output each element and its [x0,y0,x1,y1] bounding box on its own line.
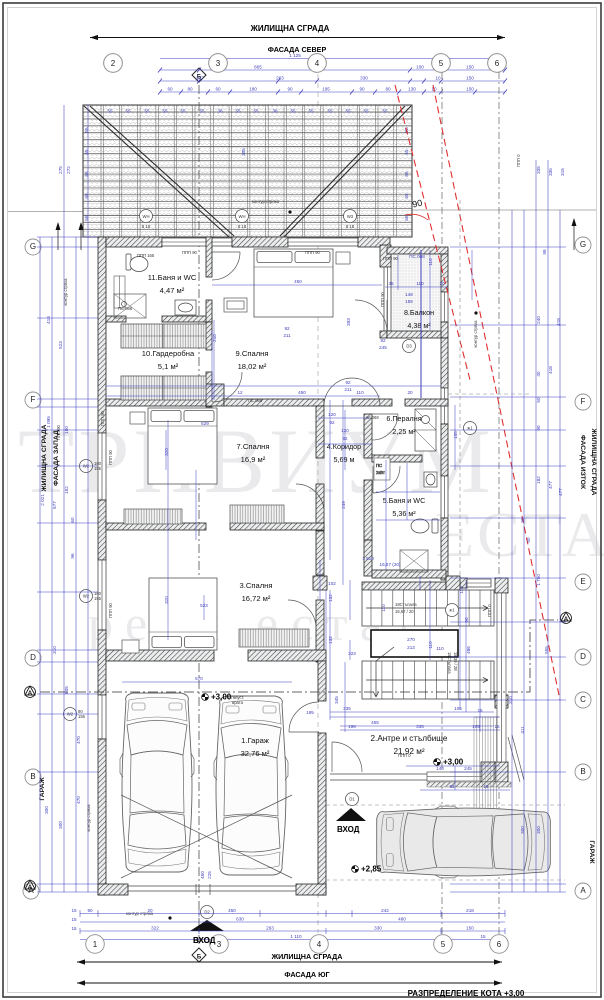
svg-text:529: 529 [201,421,209,426]
svg-text:ЖИЛИЩНА СГРАДА: ЖИЛИЩНА СГРАДА [41,424,48,492]
svg-text:105: 105 [454,706,462,711]
svg-text:контур стряха: контур стряха [473,320,478,348]
svg-text:150: 150 [466,926,474,931]
svg-text:D: D [580,652,586,661]
svg-text:80: 80 [385,87,391,92]
svg-text:1 095: 1 095 [46,416,51,428]
svg-text:132: 132 [328,594,333,602]
svg-text:335: 335 [416,724,424,729]
svg-text:5: 5 [441,940,446,949]
svg-text:15: 15 [71,908,77,913]
svg-text:ППП 0: ППП 0 [487,604,492,617]
svg-text:677: 677 [52,501,57,509]
svg-text:РАЗПРЕДЕЛЕНИЕ КОТА +3,00: РАЗПРЕДЕЛЕНИЕ КОТА +3,00 [408,989,525,998]
svg-text:55: 55 [404,149,409,155]
svg-text:180: 180 [249,87,257,92]
svg-text:92: 92 [284,326,290,331]
svg-text:8.Балкон: 8.Балкон [404,308,434,317]
svg-text:контур стряха: контур стряха [63,278,68,306]
svg-text:60: 60 [167,87,173,92]
svg-text:ж1: ж1 [449,608,455,613]
svg-text:90: 90 [536,425,541,431]
svg-text:ППП 0: ППП 0 [516,154,521,167]
svg-text:55: 55 [404,215,409,221]
svg-text:18Стъпала: 18Стъпала [447,652,452,674]
svg-text:+3,00: +3,00 [443,758,464,767]
svg-text:275: 275 [58,166,63,174]
svg-text:55: 55 [404,193,409,199]
svg-text:300: 300 [58,821,63,829]
svg-text:55: 55 [125,109,131,114]
svg-text:393: 393 [346,318,351,326]
svg-text:90: 90 [464,617,469,623]
svg-text:контур стряха: контур стряха [252,199,280,204]
svg-text:322: 322 [151,926,159,931]
svg-text:35: 35 [388,281,394,286]
svg-text:418: 418 [556,318,561,326]
svg-text:418: 418 [548,366,553,374]
svg-text:150: 150 [466,65,474,70]
svg-text:865: 865 [254,65,262,70]
svg-text:55: 55 [345,109,351,114]
svg-text:18Стъпала: 18Стъпала [395,602,417,607]
svg-text:55: 55 [144,109,150,114]
svg-text:211: 211 [283,333,291,338]
svg-text:5,69 м: 5,69 м [334,455,355,464]
svg-text:130: 130 [408,87,416,92]
svg-text:630: 630 [236,917,244,922]
svg-text:470: 470 [76,796,81,804]
svg-text:ППП 90: ППП 90 [108,449,113,465]
svg-text:523: 523 [58,341,63,349]
svg-text:300: 300 [44,806,49,814]
svg-text:249: 249 [341,501,346,509]
svg-text:150: 150 [466,76,474,81]
svg-text:20: 20 [439,281,445,286]
svg-text:врата: врата [232,700,244,705]
svg-text:335: 335 [343,706,351,711]
svg-text:418: 418 [46,316,51,324]
svg-text:455: 455 [371,720,379,725]
svg-text:345: 345 [334,696,339,704]
svg-text:контур стряха: контур стряха [86,804,91,832]
svg-text:1 750: 1 750 [536,574,541,586]
svg-text:330: 330 [374,926,382,931]
svg-text:605: 605 [64,686,69,694]
svg-text:110: 110 [428,641,433,649]
svg-text:55: 55 [107,109,113,114]
svg-text:ПС.068: ПС.068 [248,398,263,403]
svg-text:32,76 м²: 32,76 м² [241,749,270,758]
svg-text:60: 60 [215,87,221,92]
svg-text:55: 55 [308,109,314,114]
svg-text:ВХОД: ВХОД [337,825,360,834]
svg-text:20: 20 [147,908,153,913]
svg-text:263: 263 [276,76,284,81]
svg-text:477: 477 [548,481,553,489]
svg-text:95: 95 [520,517,525,523]
svg-text:ЖИЛИЩНА СГРАДА: ЖИЛИЩНА СГРАДА [590,428,597,496]
svg-text:4.Коридор: 4.Коридор [327,442,361,451]
svg-text:477: 477 [558,488,563,496]
svg-text:2: 2 [111,59,116,68]
svg-text:80: 80 [187,87,193,92]
svg-text:6.Пералня: 6.Пералня [386,414,421,423]
svg-text:7.Спалня: 7.Спалня [237,442,270,451]
svg-text:B: B [580,767,585,776]
svg-text:196: 196 [348,724,356,729]
svg-text:140: 140 [436,766,444,771]
svg-text:335: 335 [548,168,553,176]
svg-text:1.Гараж: 1.Гараж [241,736,270,745]
svg-text:155: 155 [94,596,102,601]
svg-text:110: 110 [459,586,464,594]
svg-text:211: 211 [344,387,352,392]
svg-text:105: 105 [472,724,480,729]
svg-text:ЕСТАТЕ: ЕСТАТЕ [435,499,604,570]
svg-text:+2,85: +2,85 [361,865,382,874]
svg-text:310: 310 [52,646,57,654]
svg-text:210: 210 [212,334,217,342]
svg-text:55: 55 [382,109,388,114]
svg-text:330: 330 [360,76,368,81]
svg-text:ППП 90: ППП 90 [380,291,385,307]
svg-text:9.Спалня: 9.Спалня [236,349,269,358]
svg-text:3.Спалня: 3.Спалня [240,581,273,590]
svg-text:A: A [28,884,33,891]
svg-text:4,38 м²: 4,38 м² [407,321,431,330]
svg-text:180: 180 [64,426,69,434]
svg-text:B: B [30,772,35,781]
svg-text:15: 15 [71,926,77,931]
svg-text:15: 15 [480,934,486,939]
svg-text:C: C [580,695,586,704]
svg-text:300: 300 [536,826,541,834]
svg-text:242: 242 [381,908,389,913]
svg-text:5,1 м²: 5,1 м² [158,362,179,371]
svg-text:110: 110 [356,390,364,395]
svg-text:105: 105 [453,431,458,439]
svg-text:320: 320 [164,596,169,604]
svg-text:6: 6 [497,940,502,949]
svg-text:555: 555 [544,646,549,654]
svg-text:310: 310 [508,696,513,704]
svg-text:152: 152 [64,486,69,494]
svg-text:ППП 90: ППП 90 [108,602,113,618]
svg-text:270: 270 [407,637,415,642]
svg-text:F: F [581,397,586,406]
svg-text:11.Баня и WC: 11.Баня и WC [148,273,197,282]
svg-text:D3: D3 [406,344,412,349]
svg-text:213: 213 [407,645,415,650]
svg-text:W2: W2 [83,594,90,599]
svg-text:450: 450 [298,390,306,395]
svg-text:55: 55 [327,109,333,114]
svg-text:ППП 90: ППП 90 [383,256,399,261]
svg-text:ППП 165: ППП 165 [137,253,155,258]
svg-text:55: 55 [363,109,369,114]
svg-text:90: 90 [359,87,365,92]
svg-text:ЖИЛИЩНА СГРАДА: ЖИЛИЩНА СГРАДА [250,24,330,33]
svg-text:пп.068: пп.068 [366,415,379,420]
svg-text:2,25 м²: 2,25 м² [392,427,416,436]
svg-text:5,36 м²: 5,36 м² [392,509,416,518]
svg-text:G: G [30,242,36,251]
svg-text:55: 55 [290,109,296,114]
svg-text:18,39 / 28: 18,39 / 28 [453,652,458,671]
svg-text:55: 55 [199,109,205,114]
svg-text:8 18: 8 18 [238,224,247,229]
svg-text:16,9 м²: 16,9 м² [241,455,266,464]
svg-text:38: 38 [217,109,223,114]
svg-text:8 18: 8 18 [142,224,151,229]
svg-text:WH: WH [143,214,150,219]
svg-text:96: 96 [70,553,75,559]
svg-text:120: 120 [328,412,336,417]
svg-text:16,67 / 20: 16,67 / 20 [395,609,414,614]
svg-text:2кВт: 2кВт [376,470,385,475]
svg-text:132: 132 [328,636,333,644]
svg-text:110: 110 [428,258,433,266]
svg-text:ГАРАЖ: ГАРАЖ [588,840,595,864]
svg-text:277: 277 [196,76,204,81]
svg-text:WH: WH [239,214,246,219]
svg-text:55: 55 [404,171,409,177]
svg-text:10: 10 [435,76,441,81]
svg-text:323: 323 [348,651,356,656]
svg-text:12: 12 [237,390,243,395]
svg-text:ПС.068: ПС.068 [118,306,133,311]
svg-text:Б: Б [197,955,202,961]
svg-text:150: 150 [466,87,474,92]
svg-text:305: 305 [241,148,246,156]
svg-text:90: 90 [87,908,93,913]
svg-text:92: 92 [345,380,351,385]
svg-text:411: 411 [520,726,525,734]
svg-text:15: 15 [483,784,489,789]
svg-text:90: 90 [411,198,423,210]
svg-text:155: 155 [78,714,86,719]
svg-text:ППП 90: ППП 90 [182,250,198,255]
svg-text:15: 15 [71,917,77,922]
svg-text:50: 50 [536,397,541,403]
svg-text:182: 182 [536,476,541,484]
svg-text:D: D [30,653,36,662]
svg-text:16,72 м²: 16,72 м² [242,594,271,603]
svg-text:1 810: 1 810 [362,556,374,561]
svg-text:A: A [28,690,33,697]
svg-text:18,02 м²: 18,02 м² [238,362,267,371]
svg-text:92: 92 [342,436,348,441]
svg-text:1: 1 [93,940,98,949]
svg-text:ПС.068: ПС.068 [409,254,425,259]
svg-text:486: 486 [466,646,471,654]
svg-text:155: 155 [405,299,413,304]
svg-text:195: 195 [322,87,330,92]
svg-text:15: 15 [494,724,500,729]
svg-text:450: 450 [294,279,302,284]
svg-text:1 110: 1 110 [290,934,302,939]
svg-text:40: 40 [536,371,541,377]
svg-text:92: 92 [380,338,386,343]
svg-text:315: 315 [560,168,565,176]
svg-text:225: 225 [207,871,212,879]
svg-text:38: 38 [272,109,278,114]
svg-text:245: 245 [379,345,387,350]
svg-text:450: 450 [200,871,205,879]
svg-text:90: 90 [287,87,293,92]
svg-text:D1: D1 [349,797,355,802]
svg-text:ППП 90: ППП 90 [100,410,105,426]
svg-text:92: 92 [329,420,335,425]
svg-text:ПС: ПС [376,463,382,468]
svg-text:82: 82 [449,784,455,789]
svg-text:4: 4 [317,940,322,949]
svg-text:10.Гардеробна: 10.Гардеробна [142,349,195,358]
svg-text:5: 5 [439,59,444,68]
svg-text:16,67 (20): 16,67 (20) [380,562,401,567]
svg-text:480: 480 [398,917,406,922]
svg-text:ФАСАДА ЮГ: ФАСАДА ЮГ [284,970,329,979]
svg-text:60: 60 [70,517,75,523]
svg-text:102: 102 [328,581,336,586]
svg-text:263: 263 [266,926,274,931]
svg-text:ППП 0: ППП 0 [398,753,411,758]
svg-text:320: 320 [164,448,169,456]
svg-text:450: 450 [228,908,236,913]
svg-text:G: G [580,240,586,249]
svg-text:1 125: 1 125 [289,53,301,58]
svg-text:570: 570 [195,676,203,681]
svg-text:2.Антре и стълбище: 2.Антре и стълбище [371,734,448,743]
svg-text:148: 148 [405,292,413,297]
svg-text:ВХОД: ВХОД [193,936,216,945]
svg-text:3: 3 [217,940,222,949]
svg-text:4,47 м²: 4,47 м² [160,286,185,295]
svg-text:272: 272 [66,166,71,174]
svg-text:245: 245 [464,766,472,771]
svg-text:ППП 90: ППП 90 [305,250,321,255]
svg-text:98: 98 [542,249,547,255]
svg-text:W3: W3 [347,214,354,219]
svg-text:6: 6 [495,59,500,68]
svg-text:20: 20 [407,390,413,395]
svg-text:110: 110 [416,281,424,286]
svg-text:240: 240 [536,316,541,324]
svg-text:120: 120 [341,428,349,433]
svg-text:2 021: 2 021 [40,494,45,506]
svg-text:55: 55 [235,109,241,114]
svg-text:155: 155 [94,466,102,471]
svg-text:55: 55 [253,109,259,114]
svg-text:ППП 90: ППП 90 [56,424,61,440]
svg-text:523: 523 [200,603,208,608]
svg-text:50: 50 [526,537,531,543]
svg-text:F: F [31,395,36,404]
svg-text:55: 55 [162,109,168,114]
svg-text:110: 110 [381,604,386,612]
svg-text:ФАСАДА ИЗТОК: ФАСАДА ИЗТОК [579,435,586,490]
svg-text:100: 100 [416,65,424,70]
svg-text:55: 55 [180,109,186,114]
svg-text:4: 4 [315,59,320,68]
svg-text:335: 335 [536,166,541,174]
svg-text:470: 470 [76,736,81,744]
svg-text:300: 300 [520,826,525,834]
svg-text:195: 195 [306,710,314,715]
svg-text:218: 218 [466,908,474,913]
svg-text:110: 110 [436,646,444,651]
svg-text:8 18: 8 18 [346,224,355,229]
svg-text:ЖИЛИЩНА СГРАДА: ЖИЛИЩНА СГРАДА [271,952,343,961]
svg-text:3: 3 [216,59,221,68]
svg-text:E: E [580,577,585,586]
svg-text:A: A [580,886,586,895]
svg-text:5.Баня и WC: 5.Баня и WC [383,496,426,505]
